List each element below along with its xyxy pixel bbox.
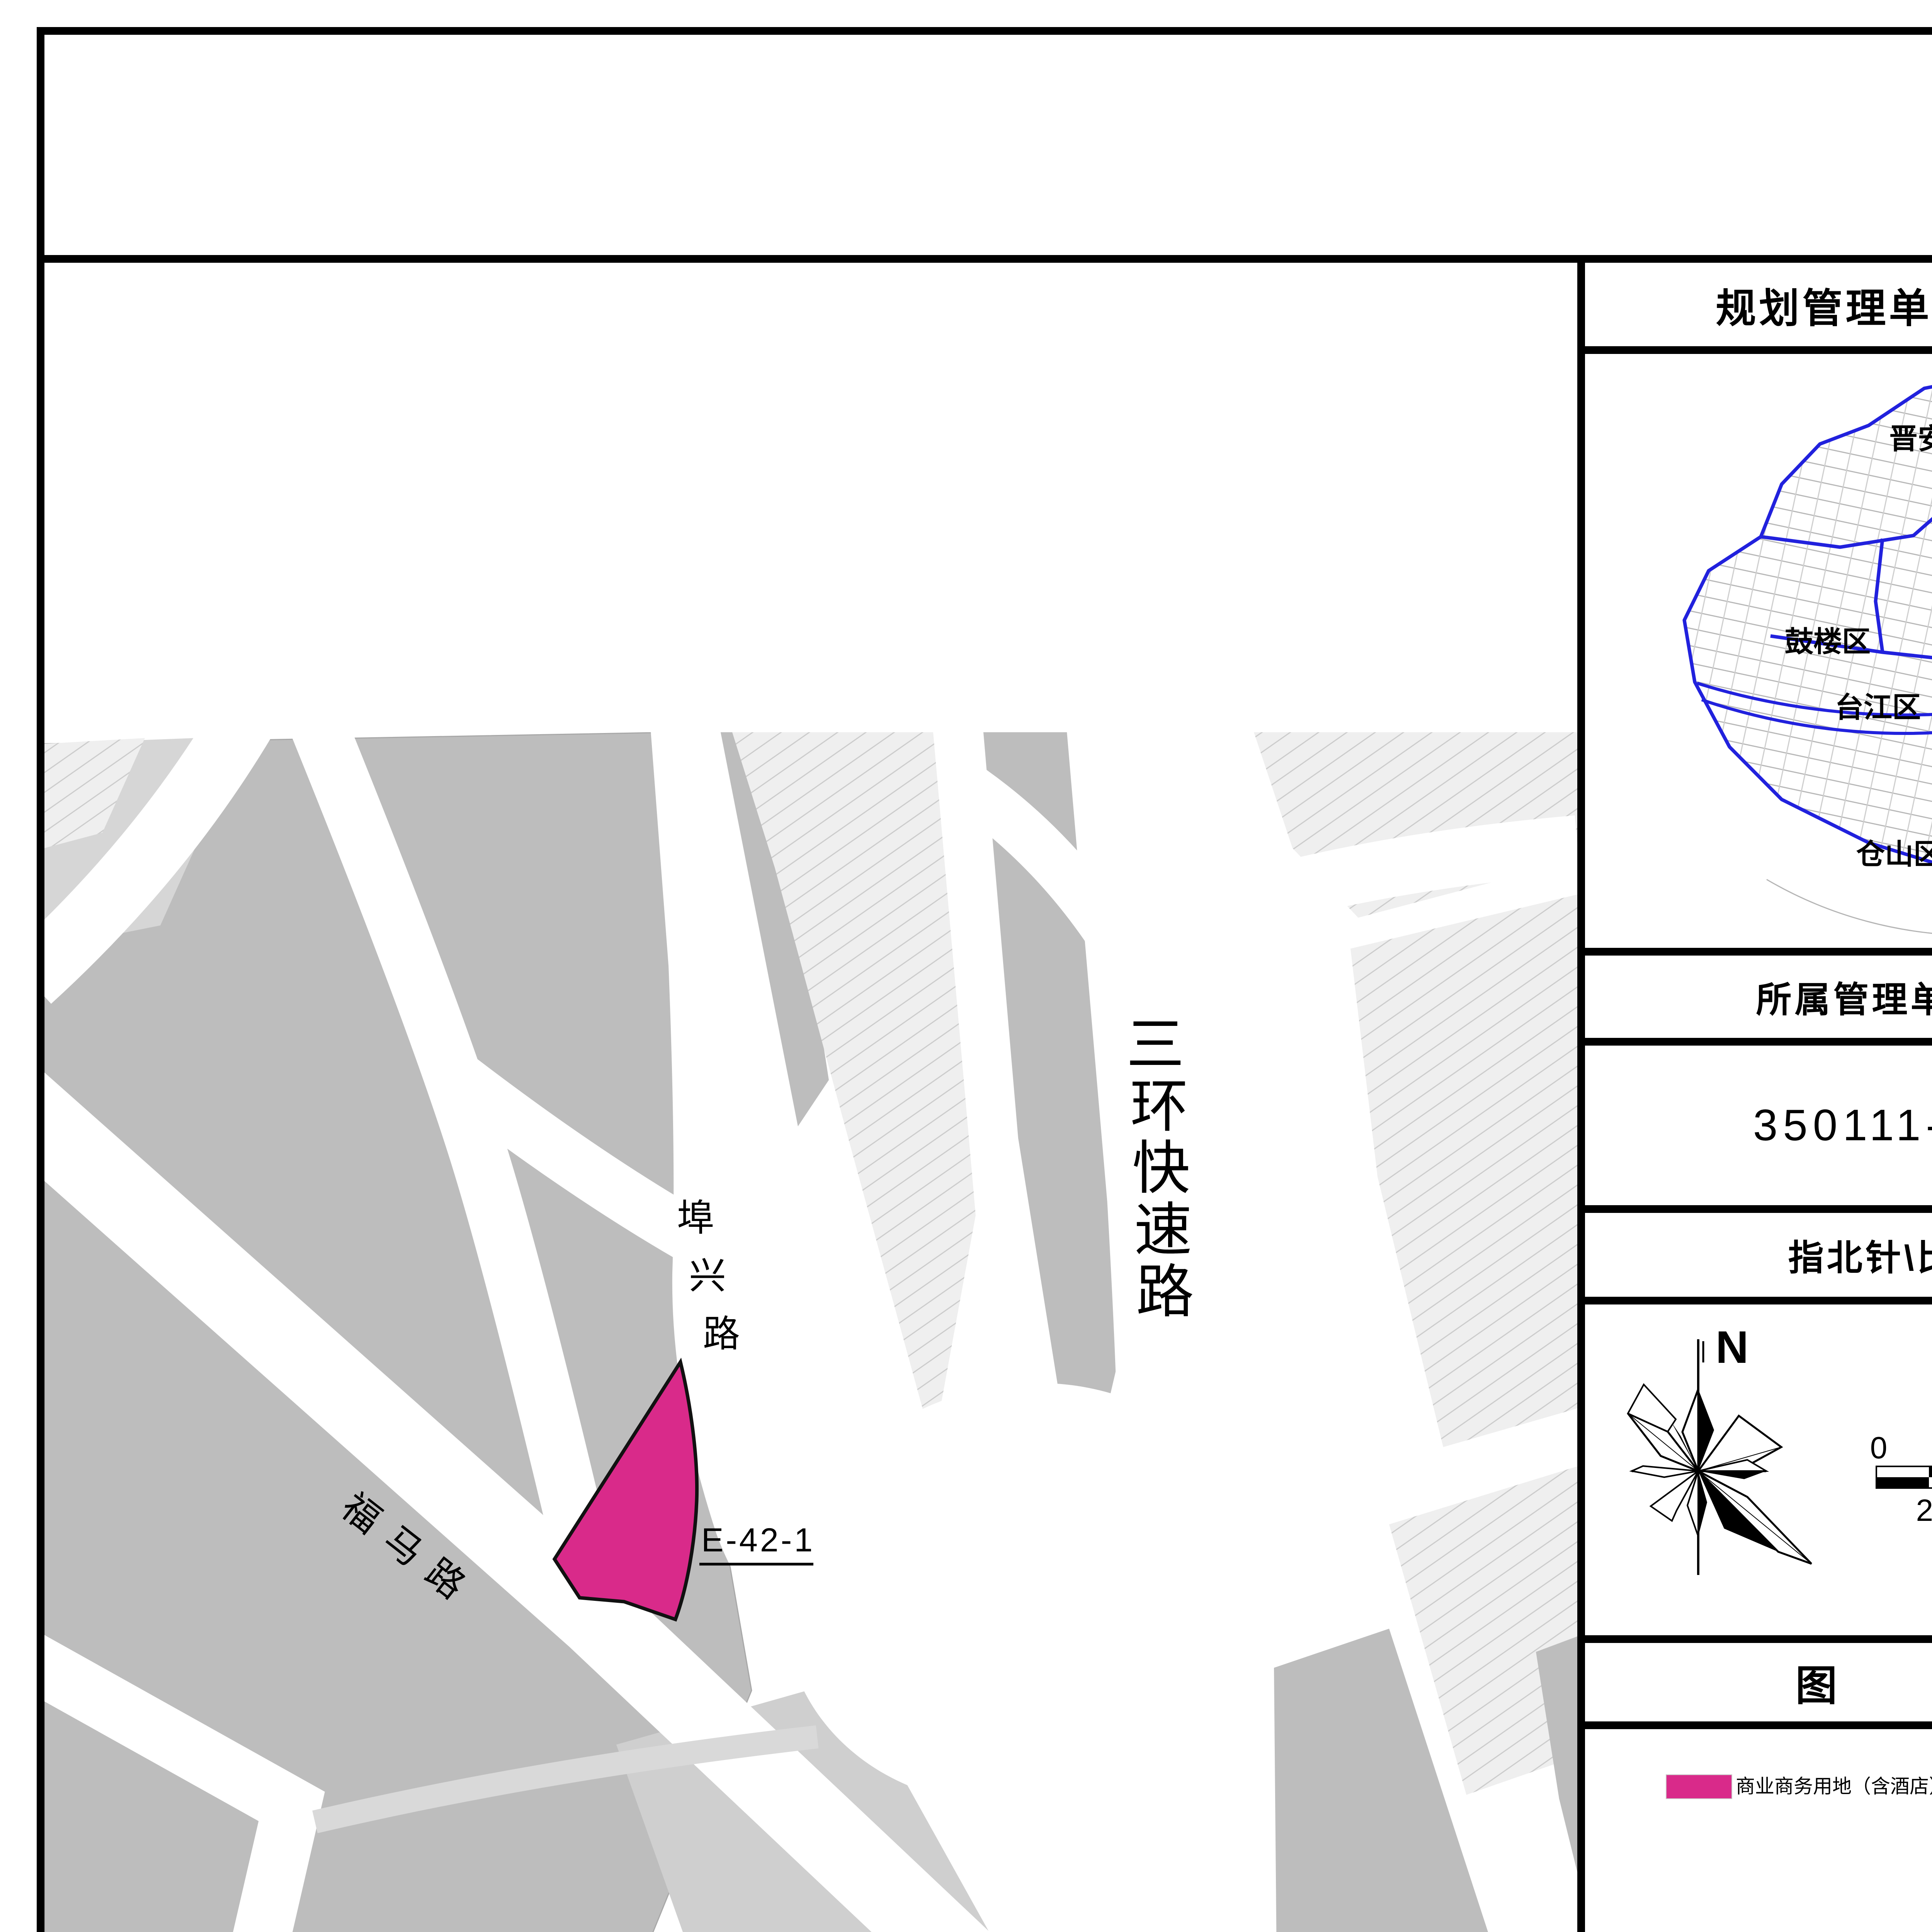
location-map-title: 规划管理单元区位图 <box>1716 276 1932 334</box>
scale-bar <box>1876 1466 1932 1488</box>
north-label: N <box>1716 1322 1748 1373</box>
compass-rose-icon <box>1628 1384 1811 1564</box>
district-inset-map: 晋安区 鼓楼区 晋安区 台江区 仓山区 <box>1585 354 1932 948</box>
map-block-hatched <box>732 732 976 1447</box>
unit-code-header-cell: 所属管理单元编码 <box>1585 956 1932 1038</box>
road-label-sanhuan: 三 环 快 速 路 <box>1126 1012 1194 1324</box>
legend-header-left: 图 <box>1795 1652 1837 1713</box>
rule-under-compass <box>1577 1635 1932 1643</box>
rule-under-code-header <box>1577 1038 1932 1046</box>
legend-swatch-commercial <box>1666 1774 1732 1799</box>
district-label: 晋安区 <box>1889 423 1932 455</box>
svg-text:埠: 埠 <box>677 1197 714 1239</box>
top-panel-divider <box>37 255 1932 263</box>
sidebar-divider <box>1577 255 1585 1932</box>
district-label: 台江区 <box>1835 691 1921 723</box>
main-map: E-42-1 福马路 埠 兴 路 三 环 快 速 路 <box>44 732 1577 1932</box>
district-label: 鼓楼区 <box>1785 626 1871 658</box>
legend-header-cell: 图 例 <box>1585 1643 1932 1721</box>
compass-header-cell: 指北针\比例尺 <box>1585 1213 1932 1297</box>
legend-item-label: 商业商务用地（含酒店） <box>1736 1774 1932 1798</box>
unit-code-value-cell: 350111-FX-E <box>1585 1046 1932 1205</box>
scale-tick-20: 20 <box>1916 1493 1932 1527</box>
svg-text:路: 路 <box>703 1313 740 1355</box>
legend-item-text: 商业商务用地（含酒店） <box>1736 1776 1932 1797</box>
svg-text:环: 环 <box>1130 1074 1188 1139</box>
parcel-label: E-42-1 <box>701 1522 815 1559</box>
unit-code-value: 350111-FX-E <box>1753 1100 1932 1151</box>
rule-under-legend-header <box>1577 1721 1932 1729</box>
rule-under-inset-map <box>1577 948 1932 956</box>
svg-text:速: 速 <box>1134 1197 1192 1262</box>
svg-text:快: 快 <box>1132 1136 1190 1201</box>
sidebar-title-cell: 规划管理单元区位图 <box>1585 263 1932 346</box>
plan-sheet: E-42-1 福马路 埠 兴 路 三 环 快 速 路 地块控规示意图 规划管理单… <box>0 0 1932 1932</box>
rail-line <box>1767 879 1932 935</box>
rule-under-code-value <box>1577 1205 1932 1213</box>
map-block-hatched <box>1350 895 1577 1447</box>
scale-tick-0: 0 <box>1870 1430 1888 1465</box>
compass-scale-panel: N 0 50 20 100M <box>1585 1304 1932 1635</box>
rule-under-compass-header <box>1577 1297 1932 1304</box>
unit-code-header: 所属管理单元编码 <box>1756 971 1932 1022</box>
svg-text:路: 路 <box>1136 1259 1194 1324</box>
rule-under-title <box>1577 346 1932 354</box>
svg-text:三: 三 <box>1126 1012 1184 1077</box>
compass-header: 指北针\比例尺 <box>1788 1229 1932 1281</box>
svg-text:兴: 兴 <box>689 1255 726 1297</box>
district-label: 仓山区 <box>1856 838 1932 870</box>
